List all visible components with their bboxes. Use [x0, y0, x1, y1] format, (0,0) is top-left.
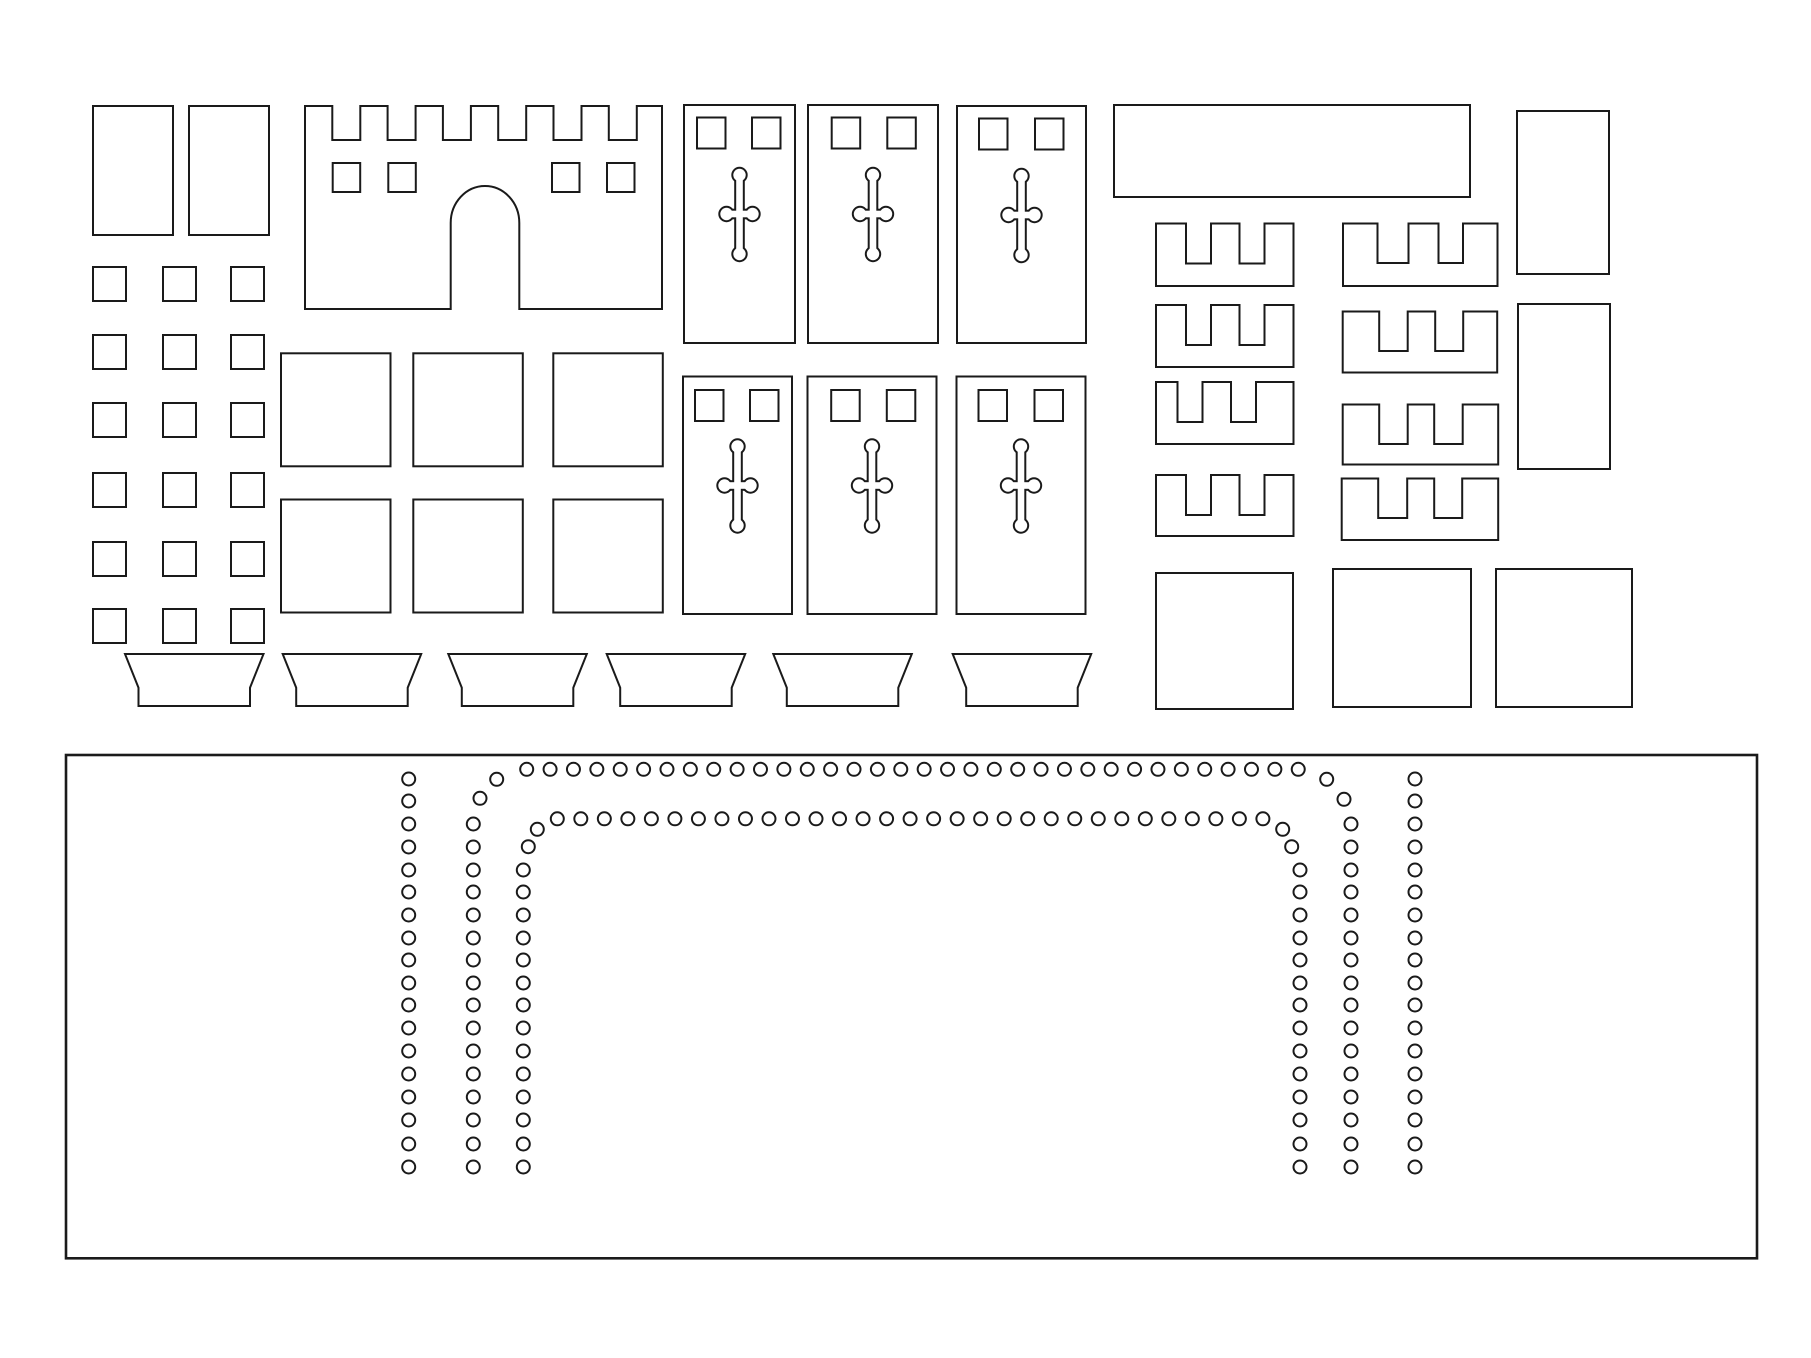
- hole: [1081, 763, 1094, 776]
- hole: [1294, 1161, 1307, 1174]
- cross-cutout-fill: [1008, 482, 1034, 489]
- hole: [1198, 763, 1211, 776]
- hole: [1021, 812, 1034, 825]
- hole: [1233, 812, 1246, 825]
- hole: [762, 812, 775, 825]
- hole: [467, 1022, 480, 1035]
- hole: [1294, 999, 1307, 1012]
- wall-square: [281, 500, 391, 613]
- hole: [402, 932, 415, 945]
- hole: [517, 886, 530, 899]
- hole: [467, 977, 480, 990]
- battlement-strip-piece: [1343, 405, 1499, 465]
- hole: [517, 932, 530, 945]
- hole: [1115, 812, 1128, 825]
- hole: [1092, 812, 1105, 825]
- hole: [645, 812, 658, 825]
- hole: [467, 932, 480, 945]
- hole: [402, 909, 415, 922]
- hole: [402, 1138, 415, 1151]
- wall-square: [413, 500, 523, 613]
- banner-window-cutout: [1035, 119, 1064, 150]
- hole: [522, 840, 535, 853]
- hole: [880, 812, 893, 825]
- banner-window-cutout: [979, 390, 1008, 421]
- hole: [1345, 977, 1358, 990]
- hole: [517, 1045, 530, 1058]
- hole: [490, 773, 503, 786]
- tab-square: [231, 542, 264, 576]
- battlement-strip-piece: [1156, 382, 1294, 444]
- hole: [1011, 763, 1024, 776]
- hole: [1409, 1068, 1422, 1081]
- hole: [517, 1091, 530, 1104]
- tab-square: [163, 542, 196, 576]
- corner-square-2: [1333, 569, 1471, 707]
- hole: [918, 763, 931, 776]
- hole: [402, 1068, 415, 1081]
- wall-square: [553, 500, 663, 613]
- hole: [754, 763, 767, 776]
- hole: [777, 763, 790, 776]
- hole: [1256, 812, 1269, 825]
- hole: [517, 1022, 530, 1035]
- hole: [1058, 763, 1071, 776]
- hole: [833, 812, 846, 825]
- base-panel: [66, 755, 1757, 1258]
- hole: [1345, 818, 1358, 831]
- hole: [1186, 812, 1199, 825]
- hole: [1409, 795, 1422, 808]
- banner-window-cutout: [887, 118, 916, 149]
- hole: [467, 909, 480, 922]
- hole: [402, 1114, 415, 1127]
- hole: [1409, 932, 1422, 945]
- hole: [894, 763, 907, 776]
- tab-square: [163, 335, 196, 369]
- hole: [786, 812, 799, 825]
- hole: [1209, 812, 1222, 825]
- hole: [1294, 1091, 1307, 1104]
- hole: [474, 792, 487, 805]
- hole: [467, 886, 480, 899]
- hole: [1268, 763, 1281, 776]
- tab-square: [231, 609, 264, 643]
- trapezoid-base-piece: [448, 654, 587, 706]
- hole: [1409, 1091, 1422, 1104]
- tab-square: [163, 403, 196, 437]
- tall-rect-1: [93, 106, 173, 235]
- hole: [801, 763, 814, 776]
- hole: [857, 812, 870, 825]
- hole: [1409, 864, 1422, 877]
- hole: [1409, 886, 1422, 899]
- hole: [1409, 954, 1422, 967]
- hole: [1345, 909, 1358, 922]
- hole: [402, 1045, 415, 1058]
- hole: [402, 841, 415, 854]
- tab-square: [231, 403, 264, 437]
- cross-cutout-fill: [725, 482, 751, 489]
- hole: [1338, 793, 1351, 806]
- hole: [974, 812, 987, 825]
- hole: [402, 864, 415, 877]
- side-rect-1: [1517, 111, 1609, 274]
- hole: [614, 763, 627, 776]
- hole: [904, 812, 917, 825]
- hole: [467, 1138, 480, 1151]
- hole: [1345, 886, 1358, 899]
- hole: [517, 909, 530, 922]
- hole: [1139, 812, 1152, 825]
- hole: [467, 999, 480, 1012]
- hole: [402, 954, 415, 967]
- hole: [1294, 1022, 1307, 1035]
- hole: [964, 763, 977, 776]
- hole: [1409, 1114, 1422, 1127]
- hole: [1285, 840, 1298, 853]
- hole: [402, 999, 415, 1012]
- hole: [598, 812, 611, 825]
- hole: [1294, 909, 1307, 922]
- hole: [1276, 823, 1289, 836]
- hole: [1345, 954, 1358, 967]
- battlement-strip-piece: [1343, 224, 1498, 287]
- hole: [517, 1068, 530, 1081]
- hole: [1409, 773, 1422, 786]
- tab-square: [93, 542, 126, 576]
- hole: [810, 812, 823, 825]
- hole: [927, 812, 940, 825]
- hole: [998, 812, 1011, 825]
- hole: [1128, 763, 1141, 776]
- trapezoid-base-piece: [125, 654, 264, 706]
- hole: [848, 763, 861, 776]
- wall-square: [281, 353, 391, 466]
- hole: [1409, 909, 1422, 922]
- hole: [467, 818, 480, 831]
- banner-window-cutout: [752, 118, 781, 149]
- hole: [668, 812, 681, 825]
- hole: [1409, 1022, 1422, 1035]
- hole: [1409, 977, 1422, 990]
- banner-window-cutout: [887, 390, 916, 421]
- hole: [1409, 818, 1422, 831]
- hole: [402, 773, 415, 786]
- hole: [1105, 763, 1118, 776]
- castle-window-cutout: [333, 163, 361, 192]
- tab-square: [93, 609, 126, 643]
- hole: [590, 763, 603, 776]
- hole: [1345, 1091, 1358, 1104]
- cross-cutout-fill: [860, 211, 886, 218]
- hole: [731, 763, 744, 776]
- hole: [1345, 1114, 1358, 1127]
- hole: [707, 763, 720, 776]
- hole: [871, 763, 884, 776]
- hole: [1409, 841, 1422, 854]
- hole: [1294, 932, 1307, 945]
- hole: [517, 999, 530, 1012]
- hole: [1162, 812, 1175, 825]
- tall-rect-2: [189, 106, 269, 235]
- hole: [824, 763, 837, 776]
- hole: [1294, 864, 1307, 877]
- hole: [1035, 763, 1048, 776]
- hole: [1320, 773, 1333, 786]
- battlement-strip-piece: [1156, 224, 1294, 287]
- hole: [1345, 864, 1358, 877]
- banner-window-cutout: [695, 390, 724, 421]
- hole: [1409, 1045, 1422, 1058]
- hole: [692, 812, 705, 825]
- tab-square: [231, 473, 264, 507]
- hole: [1294, 1045, 1307, 1058]
- hole: [1345, 999, 1358, 1012]
- hole: [402, 977, 415, 990]
- template-sheet: [0, 0, 1811, 1358]
- hole: [517, 1138, 530, 1151]
- hole: [951, 812, 964, 825]
- hole: [988, 763, 1001, 776]
- cutting-diagram: [0, 0, 1811, 1358]
- side-rect-2: [1518, 304, 1610, 469]
- hole: [402, 1161, 415, 1174]
- hole: [941, 763, 954, 776]
- hole: [402, 818, 415, 831]
- hole: [715, 812, 728, 825]
- hole: [1345, 932, 1358, 945]
- tab-square: [93, 473, 126, 507]
- hole: [517, 1114, 530, 1127]
- hole: [1245, 763, 1258, 776]
- trapezoid-base-piece: [773, 654, 912, 706]
- hole: [467, 1091, 480, 1104]
- battlement-strip-piece: [1156, 475, 1294, 536]
- banner-window-cutout: [697, 118, 726, 149]
- banner-window-cutout: [832, 118, 861, 149]
- battlement-strip-piece: [1342, 479, 1499, 541]
- tab-square: [231, 335, 264, 369]
- hole: [517, 864, 530, 877]
- hole: [1068, 812, 1081, 825]
- hole: [1345, 1161, 1358, 1174]
- hole: [1151, 763, 1164, 776]
- hole: [1345, 1045, 1358, 1058]
- hole: [574, 812, 587, 825]
- hole: [520, 763, 533, 776]
- hole: [1409, 1138, 1422, 1151]
- long-rect: [1114, 105, 1470, 197]
- hole: [467, 1045, 480, 1058]
- banner-window-cutout: [1035, 390, 1064, 421]
- castle-window-cutout: [607, 163, 635, 192]
- corner-square-3: [1496, 569, 1632, 707]
- hole: [531, 823, 544, 836]
- hole: [1294, 1114, 1307, 1127]
- hole: [467, 1068, 480, 1081]
- hole: [1345, 841, 1358, 854]
- banner-window-cutout: [979, 119, 1008, 150]
- hole: [684, 763, 697, 776]
- hole: [517, 954, 530, 967]
- trapezoid-base-piece: [283, 654, 422, 706]
- hole: [467, 954, 480, 967]
- hole: [1345, 1138, 1358, 1151]
- hole: [517, 977, 530, 990]
- hole: [567, 763, 580, 776]
- hole: [1409, 999, 1422, 1012]
- hole: [739, 812, 752, 825]
- hole: [1175, 763, 1188, 776]
- hole: [637, 763, 650, 776]
- hole: [1294, 977, 1307, 990]
- castle-window-cutout: [388, 163, 416, 192]
- tab-square: [163, 267, 196, 301]
- hole: [1222, 763, 1235, 776]
- cross-cutout-fill: [1009, 212, 1035, 219]
- hole: [467, 1161, 480, 1174]
- hole: [1409, 1161, 1422, 1174]
- hole: [1294, 886, 1307, 899]
- hole: [1292, 763, 1305, 776]
- banner-window-cutout: [750, 390, 779, 421]
- hole: [1345, 1022, 1358, 1035]
- tab-square: [93, 267, 126, 301]
- trapezoid-base-piece: [953, 654, 1091, 706]
- hole: [467, 1114, 480, 1127]
- cross-cutout-fill: [859, 482, 885, 489]
- hole: [551, 812, 564, 825]
- battlement-strip-piece: [1343, 312, 1498, 373]
- wall-square: [413, 353, 523, 466]
- hole: [1294, 954, 1307, 967]
- corner-square-1: [1156, 573, 1293, 709]
- castle-window-cutout: [552, 163, 580, 192]
- hole: [402, 1091, 415, 1104]
- hole: [402, 1022, 415, 1035]
- hole: [467, 864, 480, 877]
- hole: [402, 795, 415, 808]
- tab-square: [93, 403, 126, 437]
- hole: [660, 763, 673, 776]
- hole: [467, 841, 480, 854]
- hole: [517, 1161, 530, 1174]
- cross-cutout-fill: [727, 211, 753, 218]
- hole: [621, 812, 634, 825]
- hole: [1045, 812, 1058, 825]
- hole: [402, 886, 415, 899]
- tab-square: [231, 267, 264, 301]
- wall-square: [553, 353, 663, 466]
- hole: [544, 763, 557, 776]
- tab-square: [93, 335, 126, 369]
- tab-square: [163, 609, 196, 643]
- battlement-strip-piece: [1156, 305, 1294, 367]
- hole: [1294, 1068, 1307, 1081]
- tab-square: [163, 473, 196, 507]
- hole: [1345, 1068, 1358, 1081]
- trapezoid-base-piece: [607, 654, 746, 706]
- banner-window-cutout: [831, 390, 860, 421]
- hole: [1294, 1138, 1307, 1151]
